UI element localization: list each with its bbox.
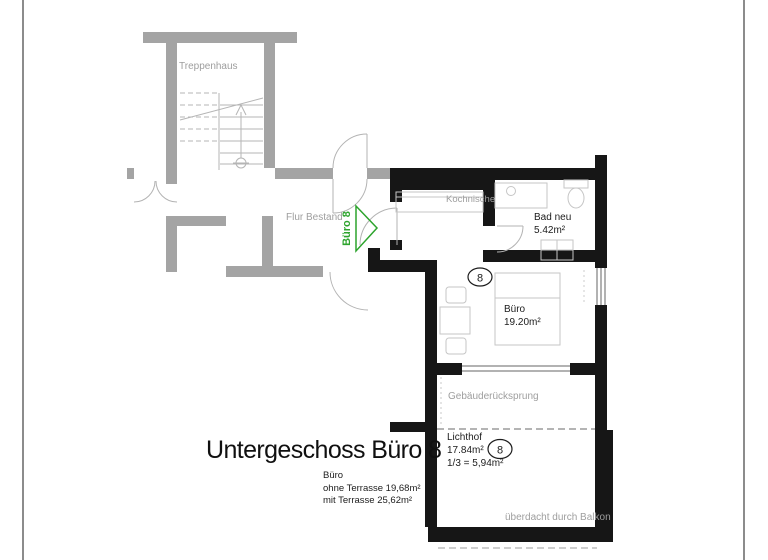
wall-segment-new	[437, 363, 462, 375]
page-title: Untergeschoss Büro 8	[206, 436, 441, 465]
wall-segment-existing	[275, 168, 333, 179]
door-arc	[330, 272, 368, 310]
wall-segment-new	[595, 305, 607, 375]
wall-segment-existing	[127, 168, 134, 179]
wall-segment-new	[368, 260, 437, 272]
door-arc	[134, 181, 155, 202]
window-east	[584, 268, 607, 305]
bathroom-vanity-sink-icon	[495, 183, 547, 208]
wall-segment-new	[390, 422, 425, 432]
wall-segment-new	[570, 363, 595, 375]
wall-segment-new	[483, 250, 595, 262]
wall-segment-new	[595, 155, 607, 168]
kitchenette-label: Kochnische	[446, 194, 495, 206]
office-label: Büro 19.20m²	[504, 303, 541, 329]
toilet-icon	[564, 180, 588, 208]
floor-plan-page: 8 8 Treppenhaus Flur Bestand Kochnische …	[0, 0, 768, 560]
office-area: 19.20m²	[504, 316, 541, 329]
bathroom-label: Bad neu 5.42m²	[534, 211, 571, 237]
wall-segment-existing	[226, 266, 323, 277]
chair	[446, 338, 466, 354]
bathroom-name: Bad neu	[534, 211, 571, 224]
lightwell-third-share: 1/3 = 5,94m²	[447, 457, 503, 470]
stair-direction-arrow	[233, 105, 249, 168]
recess-label: Gebäuderücksprung	[448, 391, 539, 403]
summary-room: Büro	[323, 470, 421, 483]
wall-segment-existing	[166, 216, 226, 226]
wall-segment-new	[390, 168, 607, 180]
door-arc	[156, 181, 177, 202]
wall-segment-new	[425, 272, 437, 375]
wall-segment-new	[398, 180, 483, 190]
lightwell-label: Lichthof 17.84m² 1/3 = 5,94m²	[447, 431, 503, 470]
page-border-left	[22, 0, 24, 560]
wall-segment-new	[428, 527, 613, 542]
wall-segment-existing	[264, 43, 275, 168]
page-border-right	[743, 0, 745, 560]
unit-arrow-label: Büro 8	[341, 205, 353, 252]
unit-number-badge-office: 8	[468, 268, 492, 286]
window-terrace	[462, 364, 570, 374]
wall-segment-new	[595, 168, 607, 268]
stairwell-label: Treppenhaus	[179, 61, 238, 73]
wall-segment-new	[390, 240, 402, 250]
area-summary: Büro ohne Terrasse 19,68m² mit Terrasse …	[323, 470, 421, 508]
summary-without-terrace: ohne Terrasse 19,68m²	[323, 483, 421, 496]
door-arc	[333, 134, 367, 168]
summary-with-terrace: mit Terrasse 25,62m²	[323, 495, 421, 508]
wall-segment-new	[595, 375, 607, 430]
wall-segment-existing	[143, 32, 297, 43]
chair	[446, 287, 466, 303]
stair-cut-line	[180, 98, 263, 120]
unit-arrow-icon	[356, 206, 377, 251]
desk	[440, 307, 470, 334]
wall-segment-new	[390, 180, 402, 202]
wall-segment-existing	[166, 43, 177, 184]
door-arc	[497, 226, 523, 252]
lightwell-area: 17.84m²	[447, 444, 503, 457]
lightwell-name: Lichthof	[447, 431, 503, 444]
office-name: Büro	[504, 303, 541, 316]
wall-segment-existing	[367, 168, 392, 179]
balcony-note-label: überdacht durch Balkon	[505, 512, 591, 524]
svg-text:8: 8	[477, 273, 483, 285]
bathroom-area: 5.42m²	[534, 224, 571, 237]
corridor-label: Flur Bestand	[286, 212, 343, 224]
stairs	[180, 93, 263, 170]
